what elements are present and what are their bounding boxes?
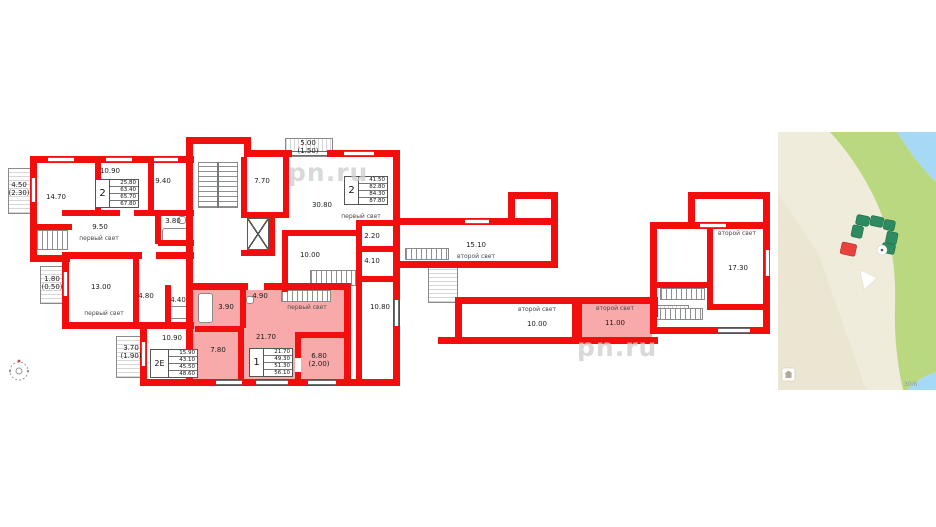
room-area-label: 7.80 (198, 346, 238, 354)
wall (62, 252, 194, 259)
light-level-label: второй свет (713, 230, 761, 237)
window (154, 157, 178, 162)
wall (356, 276, 400, 282)
light-level-label: первый свет (80, 310, 128, 317)
window (256, 380, 288, 385)
window (344, 151, 374, 156)
room-area-label: 11.00 (595, 319, 635, 327)
wall (400, 261, 558, 268)
unit-area-value: 51.30 (264, 363, 292, 370)
room-area-label: 30.80 (302, 201, 342, 209)
watermark: pn.ru (577, 333, 657, 362)
unit-area-value: 45.50 (169, 364, 197, 371)
room-area-label: 10.00 (517, 320, 557, 328)
room-area-label: 3.90 (206, 303, 246, 311)
location-map[interactable]: 30/6 (778, 132, 936, 390)
unit-area-value: 48.60 (169, 371, 197, 377)
balcony-area-label: 4.50 (2.30) (1, 181, 37, 197)
unit-area-value: 56.10 (264, 370, 292, 376)
wall (30, 156, 37, 262)
staircase (405, 248, 449, 260)
window (765, 250, 770, 276)
room-area-label: 2.20 (352, 232, 392, 240)
wall (688, 192, 770, 199)
room-area-label: 10.90 (90, 167, 130, 175)
unit-area-value: 25.80 (110, 180, 138, 187)
wall (133, 258, 139, 322)
wall (356, 220, 400, 226)
room-area-label: 4.40 (160, 296, 196, 304)
room-area-label: 10.00 (290, 251, 330, 259)
wall (241, 250, 275, 256)
unit-area-value: 49.30 (264, 356, 292, 363)
light-level-label: первый свет (337, 213, 385, 220)
staircase-divider (217, 162, 219, 208)
window (718, 328, 750, 333)
wall (393, 150, 400, 386)
light-level-label: первый свет (75, 235, 123, 242)
unit-info-table-selected[interactable]: 1 21.70 49.30 51.30 56.10 (249, 348, 293, 377)
window (308, 380, 336, 385)
staircase (654, 308, 703, 320)
staircase (660, 288, 705, 300)
watermark: pn.ru (288, 158, 368, 187)
unit-area-value: 65.70 (110, 194, 138, 201)
window (465, 219, 489, 224)
light-level-label: второй свет (513, 306, 561, 313)
room-area-label: 15.10 (456, 241, 496, 249)
wall (650, 327, 770, 334)
wall (30, 224, 72, 230)
staircase (36, 230, 68, 250)
wall (148, 162, 154, 216)
floor-plan: 4.50 (2.30) 14.70 10.90 9.40 9.50 3.80 5… (0, 0, 936, 527)
wall (356, 246, 400, 252)
wall (508, 192, 515, 218)
wall (238, 330, 244, 386)
room-area-label: 9.50 (80, 223, 120, 231)
light-level-label: первый свет (283, 304, 331, 311)
room-area-label: 4.90 (240, 292, 280, 300)
window (700, 223, 726, 228)
balcony-area-label: 5.00 (1.50) (288, 139, 328, 155)
compass-icon (6, 358, 32, 384)
wall (650, 222, 657, 334)
room-area-label: 3.80 (153, 217, 193, 225)
unit-area-value: 67.80 (110, 201, 138, 207)
door-opening (248, 283, 264, 290)
window (48, 157, 74, 162)
unit-area-value: 15.90 (169, 350, 197, 357)
wall (356, 220, 362, 379)
wall (195, 326, 244, 332)
room-area-label: 4.80 (128, 292, 164, 300)
wall (295, 332, 350, 338)
unit-area-value: 63.40 (110, 187, 138, 194)
unit-type: 2Е (151, 350, 169, 377)
wall (62, 322, 194, 329)
balcony-area-label: 1.80 (0.50) (34, 275, 70, 291)
room-area-label: 4.10 (352, 257, 392, 265)
unit-info-table: 2Е 15.90 43.10 45.50 48.60 (150, 349, 198, 378)
staircase (281, 290, 331, 302)
unit-type: 2 (96, 180, 110, 207)
door-opening (142, 252, 156, 259)
wall (344, 283, 351, 386)
elevator-shaft (247, 218, 269, 250)
wall (188, 283, 350, 290)
map-plot-label: 30/6 (904, 381, 918, 388)
room-area-label: 9.40 (143, 177, 183, 185)
room-area-label: 7.70 (242, 177, 282, 185)
unit-area-value: 43.10 (169, 357, 197, 364)
unit-area-value: 84.30 (359, 191, 387, 198)
room-area-label: 17.30 (718, 264, 758, 272)
map-entrance-dot (881, 249, 884, 252)
wall (707, 304, 769, 310)
wall (282, 230, 362, 236)
window (216, 380, 242, 385)
room-area-label: 10.90 (152, 334, 192, 342)
light-level-label: второй свет (591, 305, 639, 312)
terrace-area-label: 6.80 (2.00) (301, 352, 337, 368)
room-area-label: 14.70 (36, 193, 76, 201)
room-area-label: 13.00 (81, 283, 121, 291)
map-poi-icon (782, 368, 795, 381)
balcony-area-label: 3.70 (1.90) (113, 344, 149, 360)
wall (241, 212, 289, 218)
wall (582, 297, 658, 304)
light-level-label: второй свет (452, 253, 500, 260)
room-area-label: 21.70 (246, 333, 286, 341)
unit-info-table: 2 25.80 63.40 65.70 67.80 (95, 179, 139, 208)
wall (192, 137, 250, 144)
wall (652, 282, 709, 288)
unit-area-value: 87.80 (359, 198, 387, 204)
unit-area-value: 21.70 (264, 349, 292, 356)
unit-type: 1 (250, 349, 264, 376)
wall (244, 150, 292, 157)
window (106, 157, 132, 162)
wall (551, 192, 558, 218)
door-opening (120, 210, 134, 216)
wall (763, 222, 770, 334)
wall (455, 297, 582, 304)
room-area-label: 10.80 (360, 303, 400, 311)
